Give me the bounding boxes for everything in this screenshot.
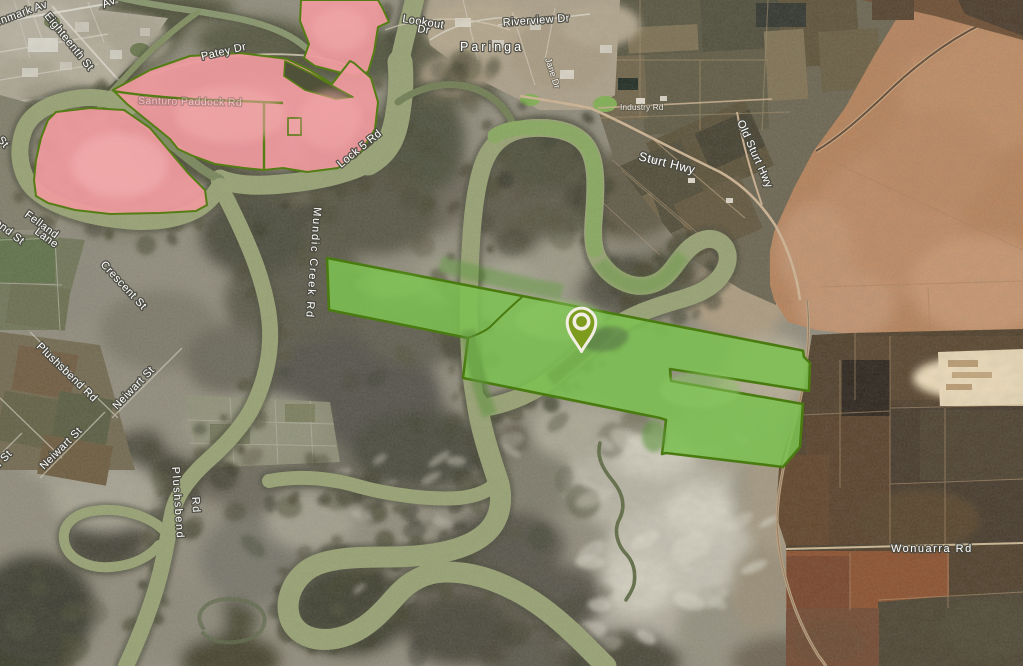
svg-text:Dr: Dr	[417, 23, 431, 37]
svg-text:Santuro Paddock Rd: Santuro Paddock Rd	[138, 95, 242, 109]
svg-text:Rd: Rd	[189, 496, 202, 514]
svg-text:Wonuarra Rd: Wonuarra Rd	[891, 543, 973, 555]
svg-text:Industry Rd: Industry Rd	[620, 102, 664, 112]
svg-text:Paringa: Paringa	[460, 40, 524, 54]
